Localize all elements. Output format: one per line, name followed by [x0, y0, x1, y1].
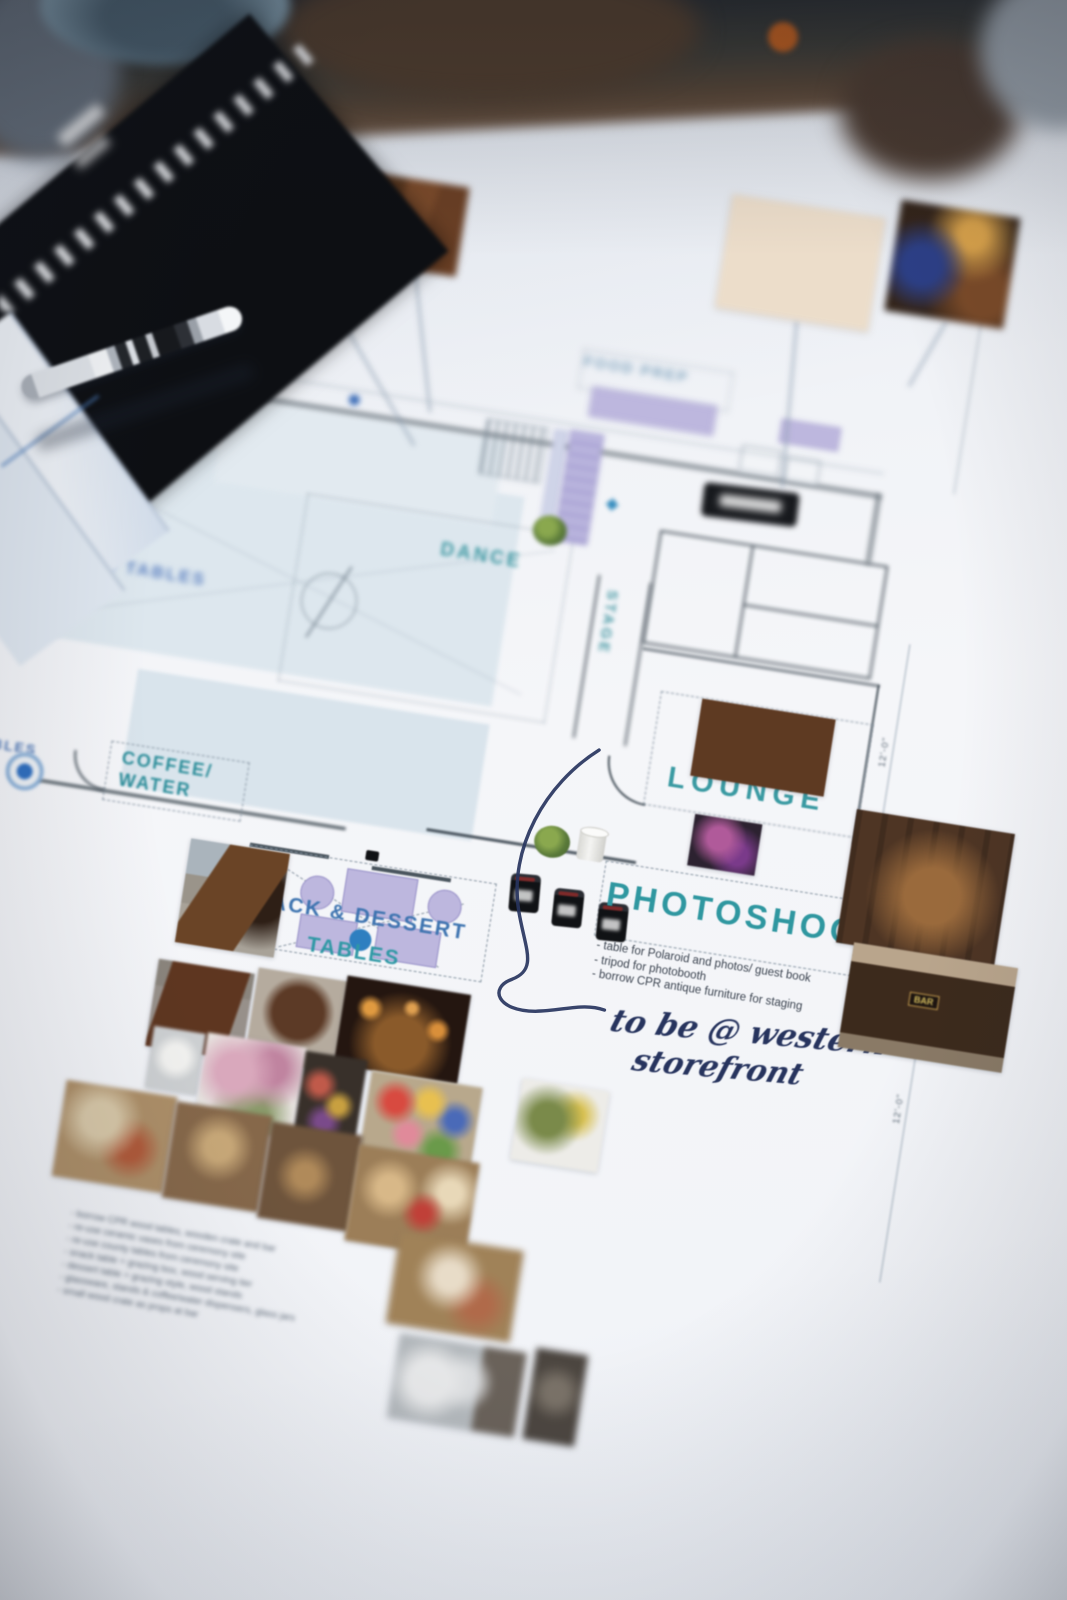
connector-dot-3 — [348, 394, 361, 407]
equip-box-1 — [739, 445, 783, 477]
photo-purple-flowers — [687, 814, 762, 876]
orange-knob — [768, 22, 798, 52]
stage-line-left — [573, 575, 601, 738]
photo-of-floorplan-scene: FOOD PREP 12'-0" 12'-0" DINING TABLES DA… — [0, 0, 1067, 1600]
stage-label: STAGE — [594, 589, 621, 656]
photo-grazing-table — [162, 1101, 273, 1212]
stage-line-right — [624, 583, 652, 746]
supply-list: - borrow CPR wood tables, wooden crate a… — [56, 1207, 357, 1347]
photo-greenery — [510, 1078, 610, 1173]
rooms-grid — [642, 530, 888, 680]
wall-right-upper — [867, 494, 880, 564]
black-sign — [701, 482, 800, 527]
photo-dessert-table — [386, 1232, 524, 1342]
connector-line-b — [414, 269, 431, 412]
connector-line-d — [908, 321, 947, 387]
photo-small-dark — [522, 1348, 588, 1447]
wall-node — [365, 850, 379, 862]
photo-white-jars — [145, 1026, 206, 1095]
teal-marker — [606, 498, 619, 511]
tables-bullseye — [3, 750, 46, 793]
photo-plates — [387, 1333, 527, 1437]
photo-barn-exterior — [175, 838, 290, 957]
stairs-hatch — [479, 418, 549, 483]
black-sign-text-smudge — [719, 494, 781, 514]
photo-dark-chandelier — [884, 200, 1020, 329]
photo-grazing-platter — [52, 1080, 178, 1193]
bar-sign: BAR — [908, 992, 939, 1010]
photo-bright-florals — [715, 194, 886, 332]
photo-grazing-spread — [257, 1121, 363, 1231]
